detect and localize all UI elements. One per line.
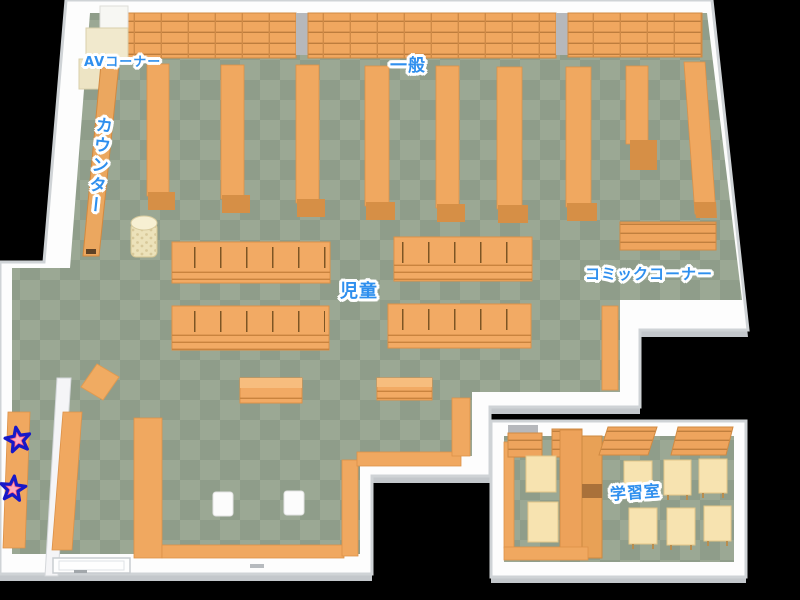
bookshelf (221, 65, 244, 199)
bookshelf (566, 67, 591, 207)
bookshelf (620, 222, 716, 250)
bookshelf-base (366, 202, 395, 220)
study-table (629, 508, 657, 544)
chair (284, 491, 304, 515)
counter-front (86, 249, 96, 254)
bookshelf (497, 67, 522, 209)
label-general: 一般 (390, 58, 426, 76)
bookshelf (626, 66, 648, 144)
bookshelf (162, 545, 344, 558)
study-table (704, 506, 731, 541)
study-table (699, 459, 727, 493)
bookshelf (671, 427, 733, 455)
bookshelf-base (222, 195, 250, 213)
label-av-corner: AVコーナー (84, 56, 161, 70)
bookshelf-base (694, 202, 717, 218)
bookshelf (599, 427, 657, 455)
low-shelf (172, 242, 330, 283)
bookshelf (342, 460, 358, 556)
label-comic-corner: コミックコーナー (585, 267, 713, 283)
display-cylinder (131, 216, 157, 257)
chair (213, 492, 233, 516)
wall-detail (250, 564, 264, 568)
bookshelf-base (498, 205, 528, 223)
wall-shelf (308, 13, 556, 58)
reading-bench (240, 378, 302, 403)
door-handle (74, 570, 87, 573)
bookshelf (365, 66, 389, 206)
top-wall-shelves (126, 13, 702, 58)
bookshelf (452, 398, 470, 456)
bookshelf (134, 418, 162, 558)
floor-map-canvas (0, 0, 800, 600)
bookshelf (357, 452, 461, 466)
bookshelf-base (567, 203, 597, 221)
bookshelf (147, 64, 169, 196)
study-table (667, 508, 695, 545)
bookshelf (508, 433, 542, 457)
wall-pillar (556, 13, 568, 55)
bookshelf (602, 306, 618, 390)
wall-shelf (568, 13, 702, 57)
library-floor-map: AVコーナー カウンター 一般 児童 コミックコーナー 学習室 (0, 0, 800, 600)
bookshelf-base (297, 199, 325, 217)
low-shelf (394, 237, 532, 281)
wall-nook (100, 6, 128, 30)
study-table (664, 460, 691, 495)
bookshelf (436, 66, 459, 208)
bookshelf (504, 442, 514, 548)
bookshelf-base (148, 192, 175, 210)
label-children: 児童 (340, 283, 378, 302)
wall-pillar (296, 13, 308, 55)
label-study-room: 学習室 (609, 483, 661, 503)
entrance-door (53, 558, 130, 573)
study-table (526, 456, 556, 492)
wall-shelf (126, 13, 296, 58)
bookshelf (296, 65, 319, 203)
low-shelf (388, 304, 531, 348)
reading-bench (377, 378, 432, 400)
bookshelf-base (630, 140, 657, 170)
study-table (528, 502, 558, 542)
bookshelf (560, 430, 582, 550)
bookshelf (504, 547, 588, 560)
low-shelf (172, 306, 329, 350)
bookshelf-base (437, 204, 465, 222)
